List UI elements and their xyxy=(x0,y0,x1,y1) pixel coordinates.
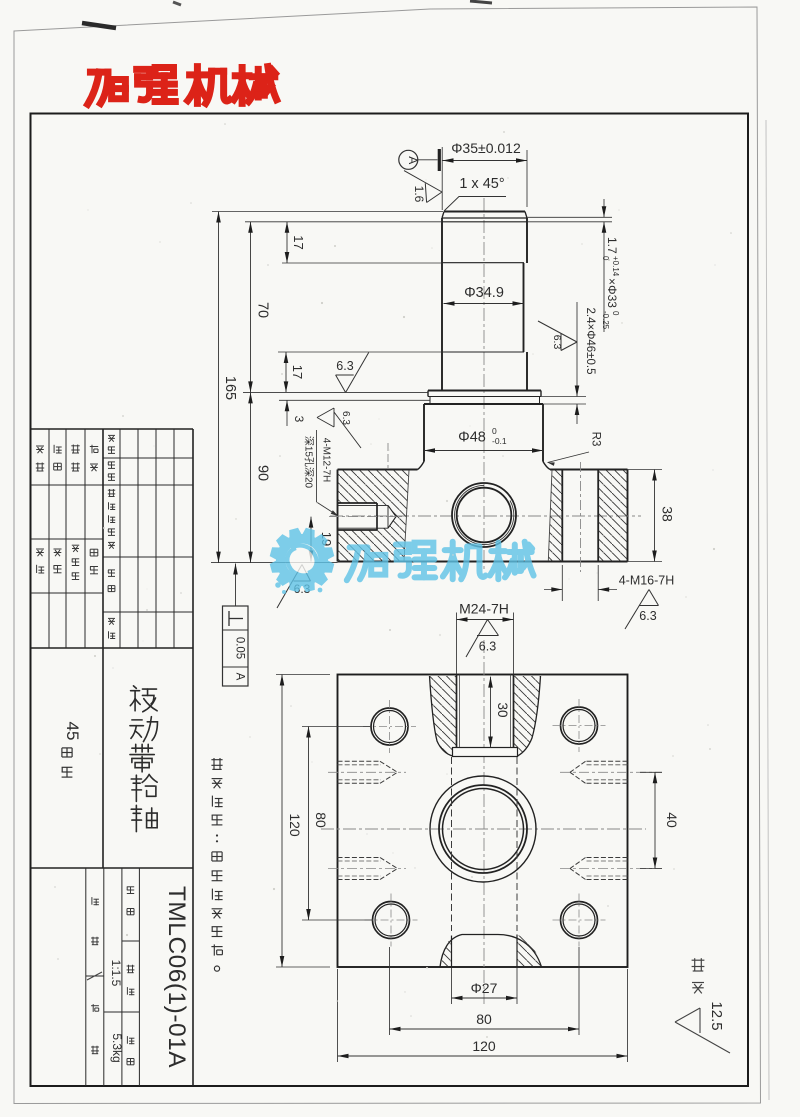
svg-text:R3: R3 xyxy=(590,432,602,447)
svg-text:120: 120 xyxy=(472,1038,496,1054)
svg-text:5.3kg: 5.3kg xyxy=(110,1033,124,1062)
svg-text:1.7: 1.7 xyxy=(605,237,619,254)
svg-text:6.3: 6.3 xyxy=(551,335,563,350)
svg-text:+0.14: +0.14 xyxy=(611,256,620,277)
svg-text:4-M12-7H: 4-M12-7H xyxy=(321,438,332,482)
svg-text:1.6: 1.6 xyxy=(412,186,426,203)
svg-text:90: 90 xyxy=(255,465,271,481)
svg-text:6.3: 6.3 xyxy=(479,640,496,654)
svg-text:Φ35±0.012: Φ35±0.012 xyxy=(451,140,521,156)
svg-text:1:1.5: 1:1.5 xyxy=(109,960,123,987)
svg-text:17: 17 xyxy=(291,235,306,249)
svg-text:12.5: 12.5 xyxy=(708,1001,725,1030)
svg-text:-0.1: -0.1 xyxy=(492,436,507,446)
svg-text:TMLC06(1)-01A: TMLC06(1)-01A xyxy=(163,886,190,1068)
svg-text:-0.25: -0.25 xyxy=(601,311,610,330)
svg-text:1 x 45°: 1 x 45° xyxy=(459,176,504,192)
svg-text:0.05: 0.05 xyxy=(234,637,246,659)
svg-text:A: A xyxy=(234,673,246,681)
svg-text:0: 0 xyxy=(492,426,497,436)
svg-text:A: A xyxy=(406,156,420,164)
svg-text:6.3: 6.3 xyxy=(336,359,353,373)
svg-text:3: 3 xyxy=(292,416,306,423)
svg-text:2.4×Φ46±0.5: 2.4×Φ46±0.5 xyxy=(584,308,596,375)
svg-text:17: 17 xyxy=(290,365,305,379)
svg-text:70: 70 xyxy=(255,302,271,318)
svg-text:Φ34.9: Φ34.9 xyxy=(464,285,504,301)
svg-text:深15孔深20: 深15孔深20 xyxy=(303,436,315,489)
svg-text:38: 38 xyxy=(660,506,676,522)
svg-text:×Φ33: ×Φ33 xyxy=(605,278,619,308)
svg-text:6.3: 6.3 xyxy=(340,411,351,425)
svg-text:6.3: 6.3 xyxy=(639,609,656,623)
svg-text:4-M16-7H: 4-M16-7H xyxy=(619,574,675,588)
svg-text:120: 120 xyxy=(287,813,303,837)
svg-text:Φ27: Φ27 xyxy=(471,980,498,996)
svg-text:Φ48: Φ48 xyxy=(458,430,486,446)
svg-text:80: 80 xyxy=(476,1011,492,1027)
svg-text:80: 80 xyxy=(313,812,329,828)
svg-text:30: 30 xyxy=(495,702,510,717)
svg-text:45: 45 xyxy=(63,722,82,741)
svg-text:40: 40 xyxy=(664,812,680,828)
svg-text:0: 0 xyxy=(611,311,620,316)
svg-text:165: 165 xyxy=(222,376,238,400)
svg-text:M24-7H: M24-7H xyxy=(459,601,509,617)
